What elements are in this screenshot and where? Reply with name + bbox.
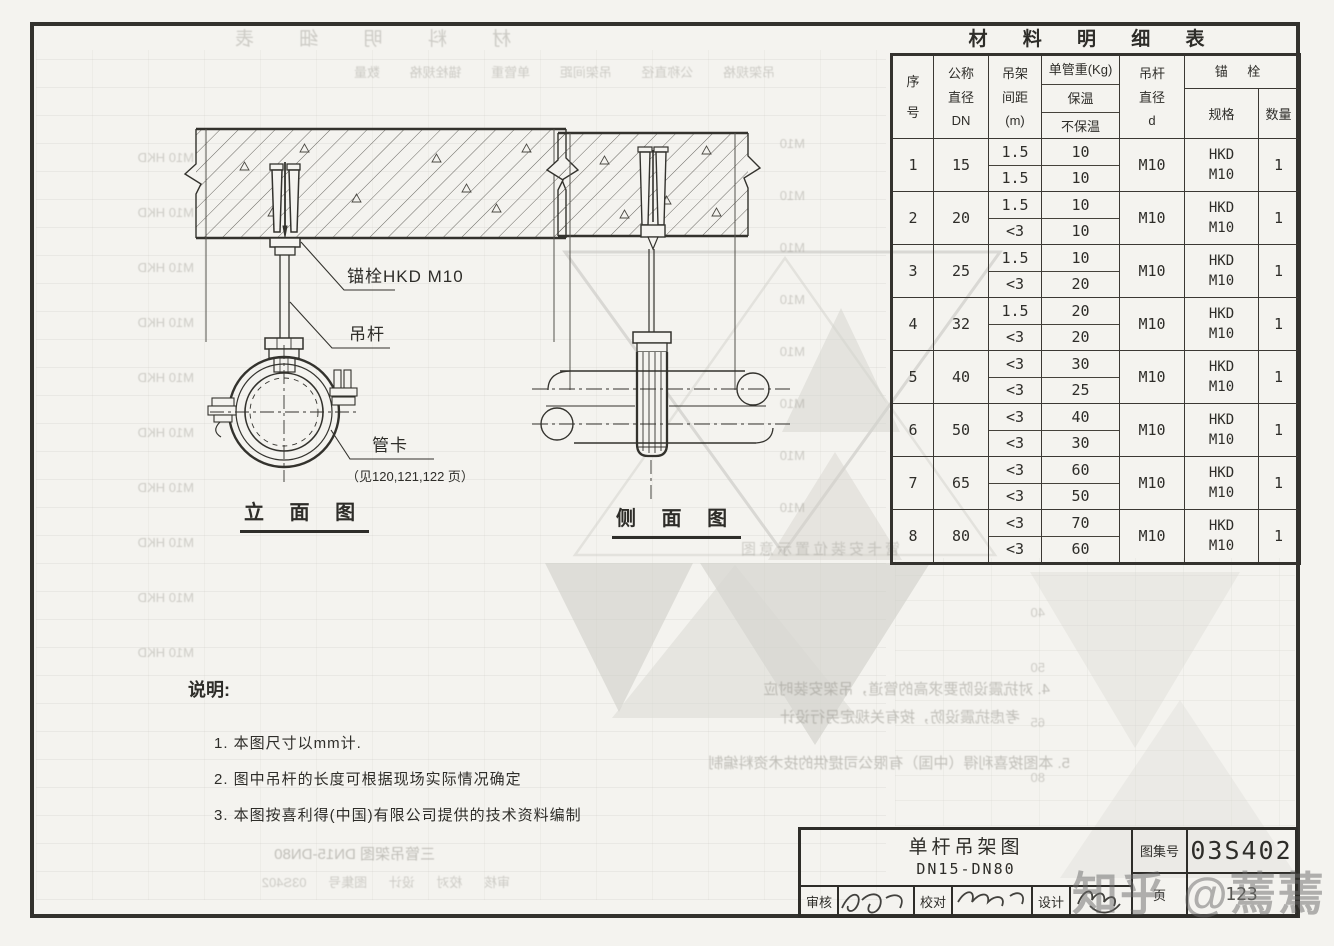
ghost-triangle-solid bbox=[1030, 572, 1240, 748]
row-weight-1: 60 bbox=[1042, 537, 1119, 563]
reviewer-label: 审核 bbox=[801, 887, 839, 915]
row-spacing-0: <3 bbox=[989, 510, 1041, 537]
materials-cell: 1020 bbox=[1042, 245, 1120, 298]
header-text: 直径 bbox=[1120, 91, 1184, 104]
atlas-no-label: 图集号 bbox=[1133, 830, 1188, 872]
ghost-triangle-solid bbox=[782, 308, 900, 432]
row-spacing-0: <3 bbox=[989, 351, 1041, 378]
header-text: (m) bbox=[989, 114, 1041, 127]
ghost-text: 材 料 明 细 表 bbox=[215, 24, 511, 51]
row-weight-1: 50 bbox=[1042, 484, 1119, 510]
materials-row: 2201.5<31010M10HKDM101 bbox=[892, 192, 1300, 245]
header-text: 吊杆 bbox=[1120, 67, 1184, 80]
row-qty: 1 bbox=[1259, 209, 1298, 227]
row-rod-dia: M10 bbox=[1120, 156, 1184, 174]
materials-cell: 1 bbox=[1259, 192, 1300, 245]
materials-cell: 7060 bbox=[1042, 510, 1120, 564]
row-spacing-1: 1.5 bbox=[989, 166, 1041, 192]
row-dn: 65 bbox=[934, 474, 988, 492]
row-qty: 1 bbox=[1259, 474, 1298, 492]
row-seq: 7 bbox=[893, 474, 933, 492]
row-seq: 4 bbox=[893, 315, 933, 333]
notes-heading: 说明: bbox=[188, 676, 230, 702]
materials-cell: 5 bbox=[892, 351, 934, 404]
header-text: 保温 bbox=[1042, 85, 1119, 113]
pipe-clamp-reference: （见120,121,122 页） bbox=[346, 466, 474, 485]
materials-row: 4321.5<32020M10HKDM101 bbox=[892, 298, 1300, 351]
side-view-drawing bbox=[532, 133, 790, 503]
page-number: 123 bbox=[1188, 874, 1295, 916]
materials-row: 3251.5<31020M10HKDM101 bbox=[892, 245, 1300, 298]
ghost-text: M10 M10 M10 M10 M10 M10 M10 M10 bbox=[745, 118, 805, 534]
materials-cell: 8 bbox=[892, 510, 934, 564]
ghost-text: 三管吊架图 DN15-DN80 bbox=[95, 843, 435, 864]
materials-cell: HKDM10 bbox=[1185, 457, 1259, 510]
hanger-rod-label: 吊杆 bbox=[349, 320, 385, 345]
row-anchor-spec-1: M10 bbox=[1185, 218, 1258, 238]
row-weight-0: 10 bbox=[1042, 139, 1119, 166]
note-item: 1. 本图尺寸以mm计. bbox=[214, 732, 362, 753]
materials-table-title: 材 料 明 细 表 bbox=[890, 24, 1298, 51]
row-dn: 15 bbox=[934, 156, 988, 174]
materials-cell: HKDM10 bbox=[1185, 351, 1259, 404]
row-anchor-spec-1: M10 bbox=[1185, 324, 1258, 344]
row-weight-1: 30 bbox=[1042, 431, 1119, 457]
row-qty: 1 bbox=[1259, 421, 1298, 439]
row-qty: 1 bbox=[1259, 527, 1298, 545]
row-seq: 1 bbox=[893, 156, 933, 174]
ghost-text: 管卡安装位置示意图 bbox=[430, 538, 900, 559]
materials-cell: M10 bbox=[1120, 351, 1185, 404]
atlas-number: 03S402 bbox=[1188, 830, 1295, 872]
pipe-clamp-label: 管卡 bbox=[372, 431, 408, 456]
materials-cell: 1.5<3 bbox=[989, 298, 1042, 351]
materials-cell: 80 bbox=[934, 510, 989, 564]
materials-cell: M10 bbox=[1120, 404, 1185, 457]
title-block: 单杆吊架图 DN15-DN80 审核 校对 设计 图集号 03S402 页 12… bbox=[798, 827, 1298, 918]
materials-row: 765<3<36050M10HKDM101 bbox=[892, 457, 1300, 510]
header-text: 公称 bbox=[934, 67, 988, 80]
materials-cell: HKDM10 bbox=[1185, 192, 1259, 245]
row-spacing-0: <3 bbox=[989, 457, 1041, 484]
header-text: d bbox=[1120, 114, 1184, 127]
row-weight-0: 60 bbox=[1042, 457, 1119, 484]
header-text: 号 bbox=[893, 106, 933, 119]
checker-label: 校对 bbox=[915, 887, 953, 915]
row-anchor-spec-1: M10 bbox=[1185, 271, 1258, 291]
materials-cell: 1 bbox=[1259, 457, 1300, 510]
materials-cell: 2020 bbox=[1042, 298, 1120, 351]
row-rod-dia: M10 bbox=[1120, 315, 1184, 333]
materials-cell: 6 bbox=[892, 404, 934, 457]
materials-cell: M10 bbox=[1120, 192, 1185, 245]
header-text: DN bbox=[934, 114, 988, 127]
row-dn: 25 bbox=[934, 262, 988, 280]
row-seq: 5 bbox=[893, 368, 933, 386]
ghost-text: 审核 校对 设计 图集号 03S402 bbox=[90, 872, 510, 891]
header-dn: 公称 直径 DN bbox=[934, 55, 989, 139]
header-rod: 吊杆 直径 d bbox=[1120, 55, 1185, 139]
drawing-title-line1: 单杆吊架图 bbox=[908, 836, 1023, 860]
row-seq: 6 bbox=[893, 421, 933, 439]
header-text: 单管重(Kg) bbox=[1042, 56, 1119, 85]
row-spacing-1: <3 bbox=[989, 272, 1041, 298]
materials-cell: 65 bbox=[934, 457, 989, 510]
signature-row: 审核 校对 设计 bbox=[801, 885, 1131, 915]
header-weight: 单管重(Kg) 保温 不保温 bbox=[1042, 55, 1120, 139]
materials-row: 650<3<34030M10HKDM101 bbox=[892, 404, 1300, 457]
materials-cell: HKDM10 bbox=[1185, 510, 1259, 564]
header-anchor: 锚 栓 规格 数量 bbox=[1185, 55, 1300, 139]
header-text: 吊架 bbox=[989, 67, 1041, 80]
row-anchor-spec-0: HKD bbox=[1185, 516, 1258, 536]
materials-cell: <3<3 bbox=[989, 510, 1042, 564]
materials-row: 880<3<37060M10HKDM101 bbox=[892, 510, 1300, 564]
note-item: 2. 图中吊杆的长度可根据现场实际情况确定 bbox=[214, 768, 522, 789]
row-qty: 1 bbox=[1259, 315, 1298, 333]
row-spacing-0: <3 bbox=[989, 404, 1041, 431]
title-block-right: 图集号 03S402 页 123 bbox=[1133, 830, 1295, 915]
materials-cell: 50 bbox=[934, 404, 989, 457]
row-rod-dia: M10 bbox=[1120, 421, 1184, 439]
row-weight-0: 20 bbox=[1042, 298, 1119, 325]
row-weight-0: 10 bbox=[1042, 245, 1119, 272]
materials-cell: 1 bbox=[1259, 139, 1300, 192]
scanned-atlas-page: 材 料 明 细 表 吊架规格 公称直径 吊架间距 单管重 锚栓规格 数量 M10… bbox=[0, 0, 1334, 946]
row-seq: 2 bbox=[893, 209, 933, 227]
ghost-triangle-solid bbox=[700, 563, 930, 745]
materials-cell: 4 bbox=[892, 298, 934, 351]
row-anchor-spec-0: HKD bbox=[1185, 198, 1258, 218]
row-spacing-0: 1.5 bbox=[989, 139, 1041, 166]
materials-cell: M10 bbox=[1120, 245, 1185, 298]
row-dn: 50 bbox=[934, 421, 988, 439]
row-dn: 80 bbox=[934, 527, 988, 545]
row-weight-1: 10 bbox=[1042, 166, 1119, 192]
row-seq: 8 bbox=[893, 527, 933, 545]
materials-cell: 1.51.5 bbox=[989, 139, 1042, 192]
note-item: 3. 本图按喜利得(中国)有限公司提供的技术资料编制 bbox=[214, 804, 582, 825]
ghost-triangle-solid bbox=[768, 452, 902, 560]
row-rod-dia: M10 bbox=[1120, 527, 1184, 545]
elevation-view-drawing bbox=[185, 129, 578, 482]
materials-cell: 4030 bbox=[1042, 404, 1120, 457]
row-spacing-1: <3 bbox=[989, 431, 1041, 457]
materials-cell: 1010 bbox=[1042, 192, 1120, 245]
materials-cell: HKDM10 bbox=[1185, 139, 1259, 192]
materials-cell: 1.5<3 bbox=[989, 192, 1042, 245]
ghost-triangle-solid bbox=[612, 565, 858, 718]
row-weight-0: 40 bbox=[1042, 404, 1119, 431]
drawing-title-line2: DN15-DN80 bbox=[916, 860, 1015, 879]
row-seq: 3 bbox=[893, 262, 933, 280]
ghost-triangle-solid bbox=[545, 563, 693, 712]
row-spacing-0: 1.5 bbox=[989, 245, 1041, 272]
materials-cell: M10 bbox=[1120, 510, 1185, 564]
row-weight-1: 20 bbox=[1042, 325, 1119, 351]
ghost-text: 40 50 65 80 bbox=[985, 585, 1045, 805]
row-spacing-1: <3 bbox=[989, 219, 1041, 245]
ghost-text: M10 HKD M10 HKD M10 HKD M10 HKD M10 HKD … bbox=[34, 130, 194, 680]
ghost-text: 吊架规格 公称直径 吊架间距 单管重 锚栓规格 数量 bbox=[55, 62, 775, 81]
ghost-text: 4. 对抗震设防要求高的管道，吊架安装时应 bbox=[450, 678, 1050, 699]
designer-label: 设计 bbox=[1033, 887, 1071, 915]
ghost-text: 5. 本图按喜利得（中国）有限公司提供的技术资料编制 bbox=[430, 752, 1070, 773]
row-rod-dia: M10 bbox=[1120, 262, 1184, 280]
header-text: 数量 bbox=[1259, 89, 1298, 138]
materials-row: 540<3<33025M10HKDM101 bbox=[892, 351, 1300, 404]
materials-cell: 15 bbox=[934, 139, 989, 192]
materials-row: 1151.51.51010M10HKDM101 bbox=[892, 139, 1300, 192]
row-spacing-1: <3 bbox=[989, 537, 1041, 563]
row-qty: 1 bbox=[1259, 156, 1298, 174]
ghost-text: 考虑抗震设防，按有关规定另行设计 bbox=[500, 706, 1020, 727]
row-weight-1: 20 bbox=[1042, 272, 1119, 298]
materials-table: 序 号 公称 直径 DN 吊架 间距 (m) bbox=[890, 53, 1301, 565]
row-anchor-spec-1: M10 bbox=[1185, 483, 1258, 503]
side-view-title: 侧 面 图 bbox=[612, 502, 741, 539]
materials-cell: 1 bbox=[1259, 298, 1300, 351]
row-anchor-spec-0: HKD bbox=[1185, 251, 1258, 271]
materials-cell: 2 bbox=[892, 192, 934, 245]
materials-cell: 40 bbox=[934, 351, 989, 404]
materials-cell: <3<3 bbox=[989, 351, 1042, 404]
designer-signature-cell bbox=[1071, 887, 1131, 915]
materials-cell: 1 bbox=[1259, 510, 1300, 564]
row-weight-0: 10 bbox=[1042, 192, 1119, 219]
materials-cell: <3<3 bbox=[989, 404, 1042, 457]
materials-cell: M10 bbox=[1120, 298, 1185, 351]
reviewer-signature-cell bbox=[839, 887, 915, 915]
header-text: 锚 栓 bbox=[1185, 56, 1298, 89]
checker-signature-cell bbox=[953, 887, 1033, 915]
materials-cell: 3025 bbox=[1042, 351, 1120, 404]
row-anchor-spec-0: HKD bbox=[1185, 304, 1258, 324]
materials-cell: HKDM10 bbox=[1185, 404, 1259, 457]
header-text: 间距 bbox=[989, 91, 1041, 104]
materials-cell: 3 bbox=[892, 245, 934, 298]
row-spacing-1: <3 bbox=[989, 325, 1041, 351]
row-anchor-spec-1: M10 bbox=[1185, 165, 1258, 185]
row-spacing-0: 1.5 bbox=[989, 298, 1041, 325]
row-qty: 1 bbox=[1259, 262, 1298, 280]
row-spacing-1: <3 bbox=[989, 378, 1041, 404]
row-anchor-spec-1: M10 bbox=[1185, 536, 1258, 556]
drawing-title: 单杆吊架图 DN15-DN80 bbox=[801, 830, 1131, 885]
row-weight-0: 30 bbox=[1042, 351, 1119, 378]
row-rod-dia: M10 bbox=[1120, 209, 1184, 227]
materials-cell: HKDM10 bbox=[1185, 245, 1259, 298]
materials-cell: 1 bbox=[1259, 404, 1300, 457]
header-spacing: 吊架 间距 (m) bbox=[989, 55, 1042, 139]
header-text: 序 bbox=[893, 75, 933, 88]
row-anchor-spec-0: HKD bbox=[1185, 145, 1258, 165]
row-rod-dia: M10 bbox=[1120, 474, 1184, 492]
materials-cell: 1010 bbox=[1042, 139, 1120, 192]
row-weight-1: 10 bbox=[1042, 219, 1119, 245]
row-qty: 1 bbox=[1259, 368, 1298, 386]
title-block-left: 单杆吊架图 DN15-DN80 审核 校对 设计 bbox=[801, 830, 1133, 915]
row-rod-dia: M10 bbox=[1120, 368, 1184, 386]
row-spacing-0: 1.5 bbox=[989, 192, 1041, 219]
row-spacing-1: <3 bbox=[989, 484, 1041, 510]
materials-cell: 7 bbox=[892, 457, 934, 510]
materials-table-header: 序 号 公称 直径 DN 吊架 间距 (m) bbox=[892, 55, 1300, 139]
materials-cell: 1 bbox=[1259, 351, 1300, 404]
materials-cell: HKDM10 bbox=[1185, 298, 1259, 351]
page-label: 页 bbox=[1133, 874, 1188, 916]
materials-cell: 25 bbox=[934, 245, 989, 298]
row-anchor-spec-0: HKD bbox=[1185, 463, 1258, 483]
header-seq: 序 号 bbox=[892, 55, 934, 139]
row-dn: 32 bbox=[934, 315, 988, 333]
row-anchor-spec-1: M10 bbox=[1185, 377, 1258, 397]
materials-table-body: 1151.51.51010M10HKDM1012201.5<31010M10HK… bbox=[892, 139, 1300, 564]
anchor-bolt-label: 锚栓HKD M10 bbox=[347, 262, 464, 287]
materials-cell: M10 bbox=[1120, 457, 1185, 510]
materials-cell: 1.5<3 bbox=[989, 245, 1042, 298]
materials-cell: <3<3 bbox=[989, 457, 1042, 510]
materials-cell: 32 bbox=[934, 298, 989, 351]
header-text: 不保温 bbox=[1042, 113, 1119, 138]
materials-cell: M10 bbox=[1120, 139, 1185, 192]
ghost-grid-right bbox=[895, 558, 1295, 826]
elevation-view-title: 立 面 图 bbox=[240, 496, 369, 533]
row-dn: 20 bbox=[934, 209, 988, 227]
row-anchor-spec-0: HKD bbox=[1185, 410, 1258, 430]
materials-cell: 1 bbox=[892, 139, 934, 192]
row-anchor-spec-0: HKD bbox=[1185, 357, 1258, 377]
header-text: 规格 bbox=[1185, 89, 1259, 138]
materials-cell: 6050 bbox=[1042, 457, 1120, 510]
header-text: 直径 bbox=[934, 91, 988, 104]
row-weight-0: 70 bbox=[1042, 510, 1119, 537]
row-weight-1: 25 bbox=[1042, 378, 1119, 404]
row-anchor-spec-1: M10 bbox=[1185, 430, 1258, 450]
materials-cell: 1 bbox=[1259, 245, 1300, 298]
row-dn: 40 bbox=[934, 368, 988, 386]
materials-cell: 20 bbox=[934, 192, 989, 245]
